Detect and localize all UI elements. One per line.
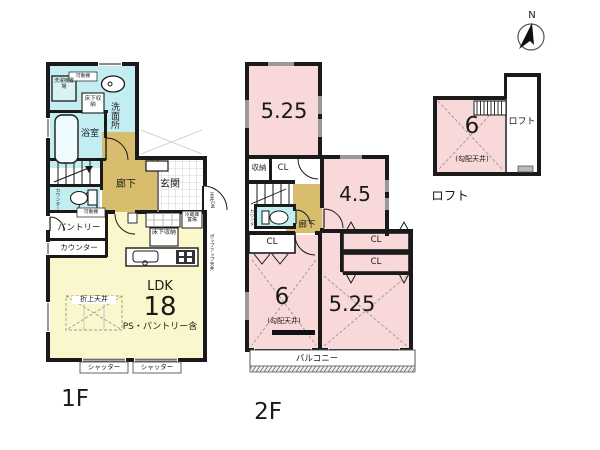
washbasin-icon xyxy=(102,76,125,92)
label-storage: 収納 xyxy=(248,164,270,172)
label-floor1: 1F xyxy=(52,387,98,413)
label-east-note-bottom: ポップアップ天井 xyxy=(206,227,214,277)
label-underfloor-storage-kitchen: 床下収納 xyxy=(151,230,177,237)
label-room-525-bottom: 5.25 xyxy=(322,293,382,317)
label-laundry: 洗濯機置場 xyxy=(53,79,75,90)
label-closet-right-2: CL xyxy=(362,258,390,268)
toilet-icon-2f xyxy=(262,211,288,224)
room6-counter-bar xyxy=(272,330,315,335)
floor-plan-page: N 洗濯機置場 可動棚 床下収納 洗面所 浴室 廊下 玄関 カウンター パントリ… xyxy=(0,0,600,450)
label-floor2: 2F xyxy=(244,400,292,426)
label-entrance: 玄関 xyxy=(155,179,185,190)
label-room-45: 4.5 xyxy=(327,183,383,205)
label-closet-left: CL xyxy=(255,237,289,247)
label-room-6-loft: 6 xyxy=(452,114,492,140)
label-room-6-note-loft: (勾配天井) xyxy=(444,156,500,164)
label-hallway-1f: 廊下 xyxy=(110,179,142,190)
label-ldk-size: 18 xyxy=(130,293,190,322)
label-shelf-note-top: 可動棚 xyxy=(69,74,97,79)
toilet-icon-1f xyxy=(71,190,98,205)
label-closet-right-1: CL xyxy=(362,236,390,246)
label-closet-top: CL xyxy=(271,164,295,174)
shoe-cabinet xyxy=(146,161,168,171)
label-toilet-counter-1f: カウンター xyxy=(53,187,60,211)
label-pantry: パントリー xyxy=(56,224,102,234)
label-east-note-top: 天井DN xyxy=(206,185,214,215)
compass-icon xyxy=(518,23,544,50)
label-room-6-note-2f: (勾配天井) xyxy=(256,318,312,326)
label-underfloor-storage-top: 床下収納 xyxy=(83,96,103,108)
label-ldk-note: PS・パントリー含 xyxy=(116,322,204,332)
label-shutter-left: シャッター xyxy=(80,364,128,371)
label-hallway-2f: 廊下 xyxy=(292,221,322,231)
label-shelf-note-pantry: 可動棚 xyxy=(77,210,105,215)
label-counter: カウンター xyxy=(57,244,101,252)
label-room-525-top: 5.25 xyxy=(254,100,314,124)
stove-icon xyxy=(176,250,195,264)
label-toilet-counter-2f: カウンター xyxy=(248,207,254,227)
label-loft-floor: ロフト xyxy=(428,189,472,203)
label-shutter-right: シャッター xyxy=(133,364,181,371)
kitchen-counter-icon xyxy=(126,248,198,266)
compass-north-label: N xyxy=(526,10,538,21)
label-bath: 浴室 xyxy=(72,129,108,139)
pipe-space-box xyxy=(128,213,137,223)
label-balcony: バルコニー xyxy=(288,355,346,365)
label-room-6-2f: 6 xyxy=(262,285,302,311)
label-fridge-space: 冷蔵庫置場 xyxy=(183,213,201,224)
kitchen-cupboard-icon xyxy=(146,213,180,227)
label-ceiling-note: 折上天井 xyxy=(72,296,116,304)
label-loft-area: ロフト xyxy=(507,117,537,127)
loft-step xyxy=(518,166,533,172)
